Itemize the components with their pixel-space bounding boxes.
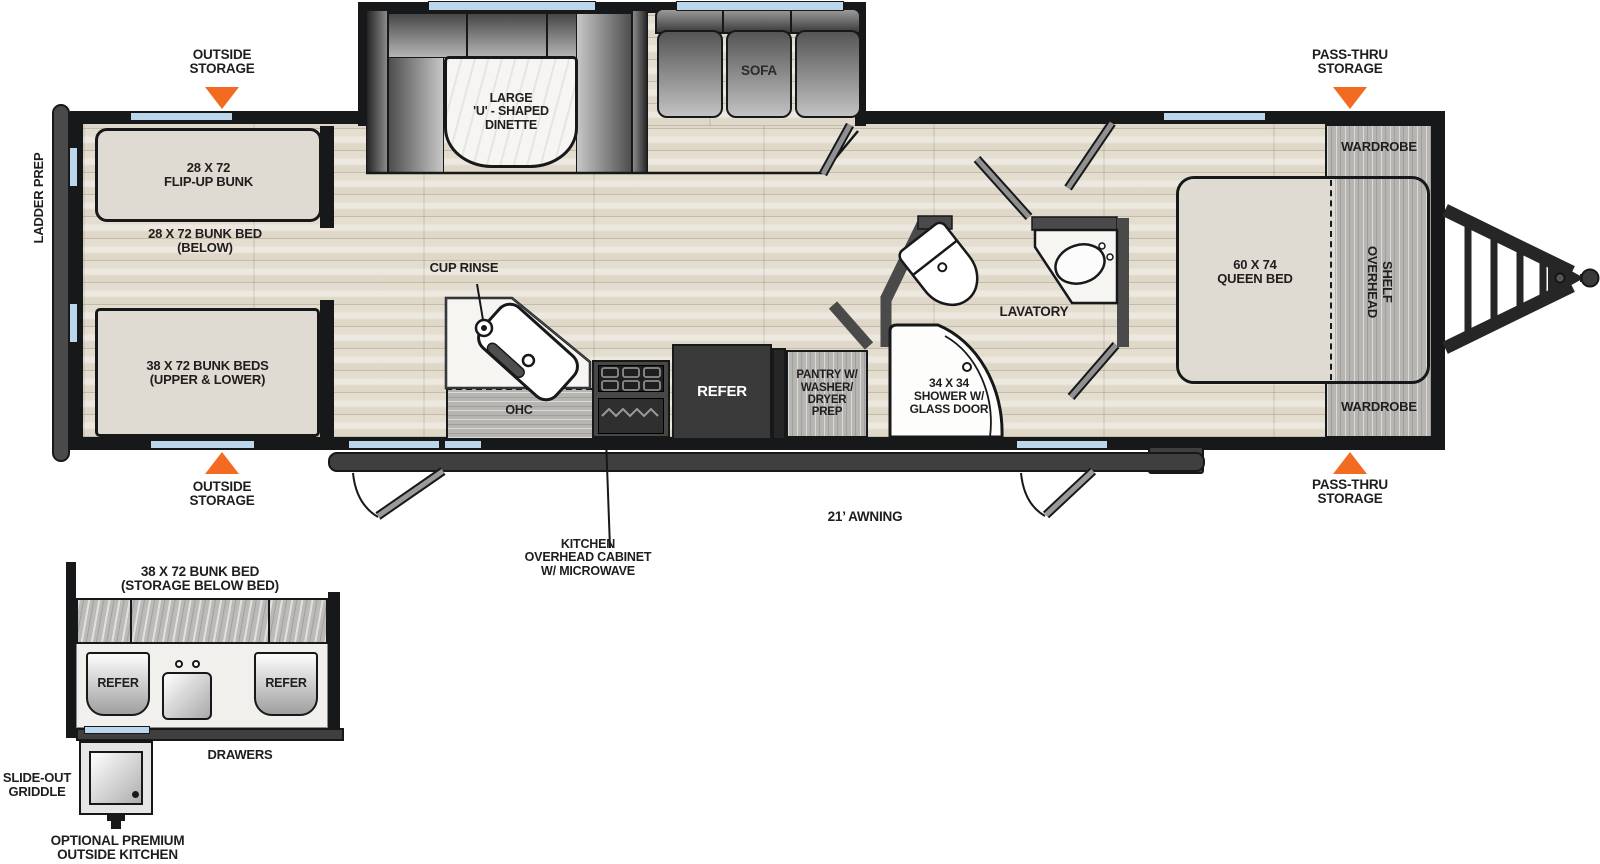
outside-kitchen-title: 38 X 72 BUNK BED (STORAGE BELOW BED) (90, 565, 310, 594)
wardrobe-top-label: WARDROBE (1327, 140, 1431, 154)
ok-faucet-icon (175, 660, 183, 668)
sofa-label: SOFA (724, 64, 794, 78)
ok-caption: OPTIONAL PREMIUM OUTSIDE KITCHEN (25, 834, 210, 863)
queen-bed-label: 60 X 74 QUEEN BED (1180, 258, 1330, 286)
bunk-beds: 38 X 72 BUNK BEDS (UPPER & LOWER) (95, 308, 320, 437)
ok-griddle-handle (111, 821, 121, 829)
rear-bumper (52, 104, 70, 462)
bunk-wall-lower (320, 300, 334, 437)
bunk-below-label: 28 X 72 BUNK BED (BELOW) (110, 227, 300, 255)
ok-bunk-seam (130, 598, 132, 644)
refrigerator: REFER (672, 344, 772, 440)
dinette-table: LARGE 'U' - SHAPED DINETTE (444, 56, 578, 168)
pass-thru-top-label: PASS-THRU STORAGE (1280, 48, 1420, 77)
window-strip (676, 1, 844, 11)
entry-door (1021, 471, 1093, 516)
awning-bar (328, 452, 1205, 472)
pantry-label: PANTRY W/ WASHER/ DRYER PREP (796, 369, 857, 418)
wardrobe-bottom-label: WARDROBE (1327, 400, 1431, 414)
storage-arrow-icon (205, 452, 239, 474)
dinette-post-left (366, 10, 388, 173)
window-strip (130, 112, 233, 121)
window-strip (444, 440, 482, 449)
outside-storage-bottom-label: OUTSIDE STORAGE (152, 480, 292, 509)
storage-arrow-icon (1333, 87, 1367, 109)
kitchen-cabinet-label: KITCHEN OVERHEAD CABINET W/ MICROWAVE (508, 538, 668, 578)
ok-drawers-label: DRAWERS (180, 748, 300, 762)
hitch-ball-icon (1582, 270, 1599, 287)
stove-burner-area (598, 365, 664, 392)
ok-sink (162, 672, 212, 720)
ok-bunk-strip (76, 598, 328, 644)
ok-left-wall (66, 562, 76, 738)
ok-refer-right: REFER (254, 652, 318, 716)
pantry: PANTRY W/ WASHER/ DRYER PREP (786, 350, 868, 438)
hitch-tongue (1445, 210, 1599, 348)
ok-griddle-opening (84, 726, 150, 734)
floorplan-canvas: 28 X 72 FLIP-UP BUNK 28 X 72 BUNK BED (B… (0, 0, 1600, 864)
sofa-cushion (657, 30, 723, 118)
ok-bunk-seam (268, 598, 270, 644)
window-strip (1016, 440, 1108, 449)
ok-refer-left-label: REFER (97, 677, 138, 690)
window-strip (150, 440, 255, 449)
storage-arrow-icon (1333, 452, 1367, 474)
shower-label: 34 X 34 SHOWER W/ GLASS DOOR (896, 377, 1002, 415)
dinette-post-right (632, 10, 648, 173)
lavatory-label: LAVATORY (974, 305, 1094, 319)
storage-arrow-icon (205, 87, 239, 109)
awning-label: 21’ AWNING (785, 510, 945, 524)
flip-up-bunk: 28 X 72 FLIP-UP BUNK (95, 128, 322, 222)
bunk-wall-upper (320, 126, 334, 228)
ohc-label: OHC (489, 404, 549, 417)
bunk-beds-label: 38 X 72 BUNK BEDS (UPPER & LOWER) (146, 359, 268, 387)
bed-divider-dashed (1330, 180, 1332, 380)
refer-end-post (772, 348, 786, 440)
entry-door (353, 471, 443, 517)
sofa-back-seam (790, 10, 792, 32)
ok-right-wall (328, 592, 340, 733)
overhead-shelf-label: OVERHEAD SHELF (1364, 200, 1402, 364)
cup-rinse-label: CUP RINSE (414, 261, 514, 275)
dinette-label: LARGE 'U' - SHAPED DINETTE (473, 92, 549, 132)
window-strip (348, 440, 440, 449)
window-strip (1163, 112, 1266, 121)
ok-refer-left: REFER (86, 652, 150, 716)
window-strip (69, 303, 78, 343)
dinette-bench-right (576, 13, 632, 173)
ok-faucet-icon (192, 660, 200, 668)
flip-up-bunk-label: 28 X 72 FLIP-UP BUNK (164, 161, 253, 189)
dinette-bench-seam (466, 13, 468, 58)
ok-griddle-knob-icon (132, 791, 139, 798)
sofa-cushion (795, 30, 861, 118)
ok-griddle-label: SLIDE-OUT GRIDDLE (0, 771, 74, 799)
dinette-bench-seam (546, 13, 548, 58)
ok-refer-right-label: REFER (265, 677, 306, 690)
pass-thru-bottom-label: PASS-THRU STORAGE (1280, 478, 1420, 507)
oven-area (598, 398, 664, 434)
outside-storage-top-label: OUTSIDE STORAGE (152, 48, 292, 77)
refer-label: REFER (697, 384, 747, 400)
window-strip (428, 1, 596, 11)
window-strip (69, 147, 78, 187)
ladder-prep-label: LADDER PREP (32, 138, 48, 258)
sofa-back-seam (722, 10, 724, 32)
